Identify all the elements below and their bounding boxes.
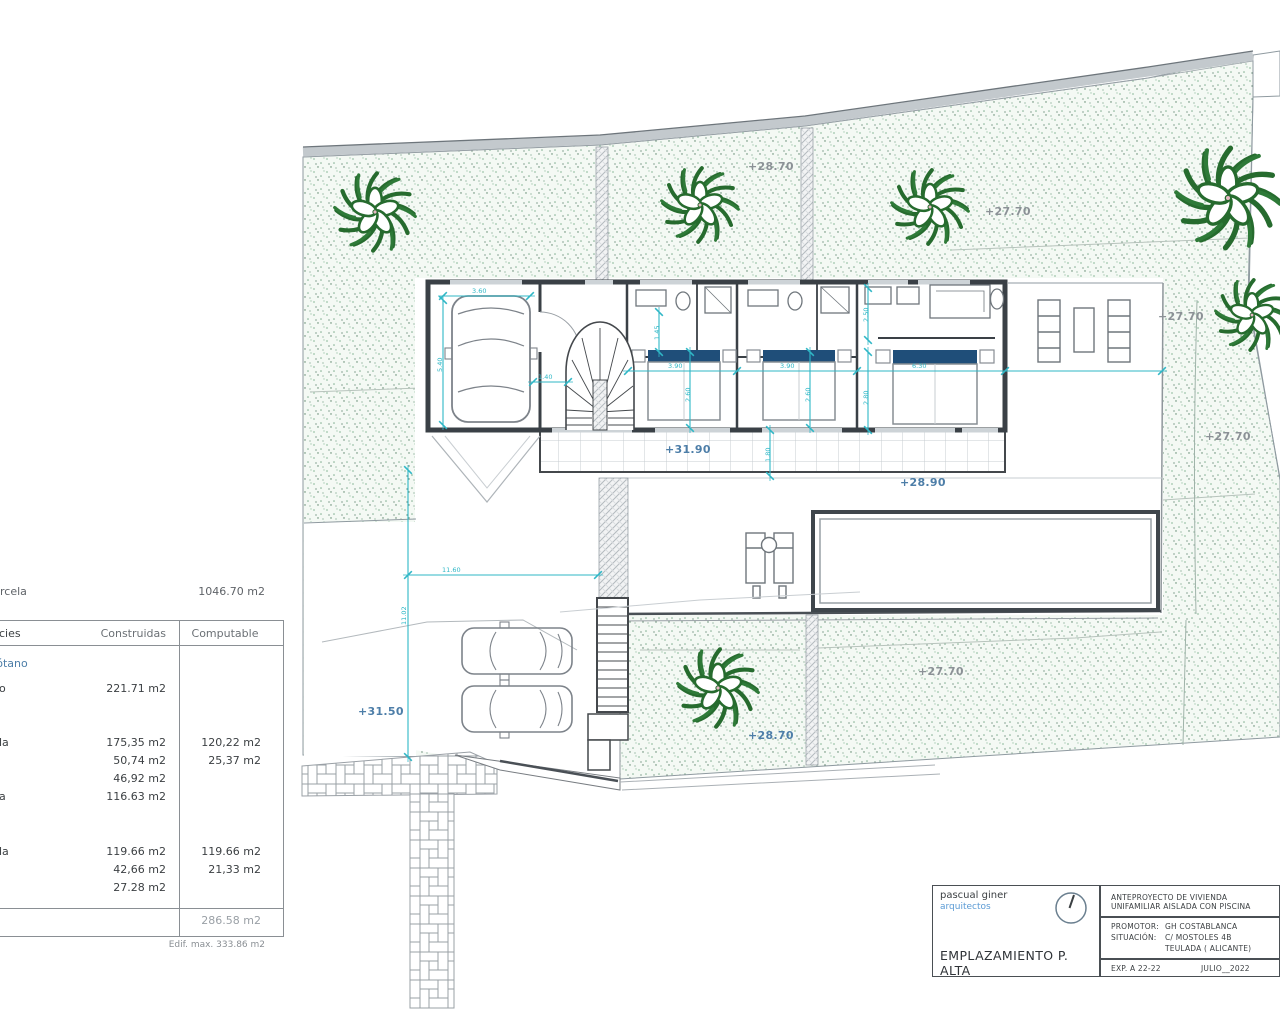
table-row: 46,92 m2 (0, 772, 283, 788)
firm-name: pascual giner (940, 890, 1007, 901)
firm-logo-icon (1053, 890, 1089, 930)
table-total-line (0, 908, 283, 909)
total-computable: 286.58 m2 (189, 914, 261, 927)
tiled-terrace (540, 430, 1005, 472)
title-block-project: ANTEPROYECTO DE VIVIENDA UNIFAMILIAR AIS… (1100, 885, 1280, 977)
table-row: a 116.63 m2 (0, 790, 283, 806)
table-row: la 175,35 m2 120,22 m2 (0, 736, 283, 752)
header-computable: Computable (189, 627, 261, 640)
beds (632, 350, 994, 424)
project-line1: ANTEPROYECTO DE VIVIENDA (1111, 893, 1227, 902)
site-plan-page: { "parcel_row": { "label_fragment": "rce… (0, 0, 1280, 1024)
swimming-pool (813, 512, 1158, 610)
table-row: 50,74 m2 25,37 m2 (0, 754, 283, 770)
divider (1101, 958, 1279, 960)
drawing-title: EMPLAZAMIENTO P. ALTA (940, 948, 1099, 978)
situacion-value1: C/ MOSTOLES 4B (1165, 933, 1232, 942)
divider (1101, 916, 1279, 918)
firm-role: arquitectos (940, 902, 991, 912)
section-title: Baja (0, 711, 283, 727)
section-title: Alta (0, 820, 283, 836)
situacion-label: SITUACIÓN: (1111, 933, 1157, 942)
boundary-notch (1253, 51, 1280, 97)
table-row: la 119.66 m2 119.66 m2 (0, 845, 283, 861)
rubble-wall (302, 752, 940, 1008)
table-header-line (0, 645, 283, 646)
header-col0: cies (0, 627, 21, 640)
title-block-firm: pascual giner arquitectos EMPLAZAMIENTO … (932, 885, 1100, 977)
section-title: Semisótano (0, 657, 283, 673)
building (428, 280, 1005, 433)
table-total-row: 286.58 m2 (0, 914, 283, 930)
table-row: 27.28 m2 (0, 881, 283, 897)
exp-date: JULIO__2022 (1201, 964, 1250, 973)
header-construidas: Construidas (21, 627, 166, 640)
table-row: o 221.71 m2 (0, 682, 283, 698)
spiral-stair (566, 322, 634, 430)
promotor-value: GH COSTABLANCA (1165, 922, 1237, 931)
project-line2: UNIFAMILIAR AISLADA CON PISCINA (1111, 902, 1251, 911)
promotor-label: PROMOTOR: (1111, 922, 1159, 931)
edif-max-note: Edif. max. 333.86 m2 (120, 940, 265, 950)
parcel-value: 1046.70 m2 (120, 585, 265, 598)
table-header-row: cies Construidas Computable (0, 627, 283, 643)
exp-number: EXP. A 22-22 (1111, 964, 1161, 973)
table-row: 42,66 m2 21,33 m2 (0, 863, 283, 879)
parcel-label: rcela (0, 585, 27, 598)
situacion-value2: TEULADA ( ALICANTE) (1165, 944, 1251, 953)
title-block: pascual giner arquitectos EMPLAZAMIENTO … (928, 883, 1280, 979)
areas-table: cies Construidas Computable Semisótano o… (0, 620, 284, 937)
